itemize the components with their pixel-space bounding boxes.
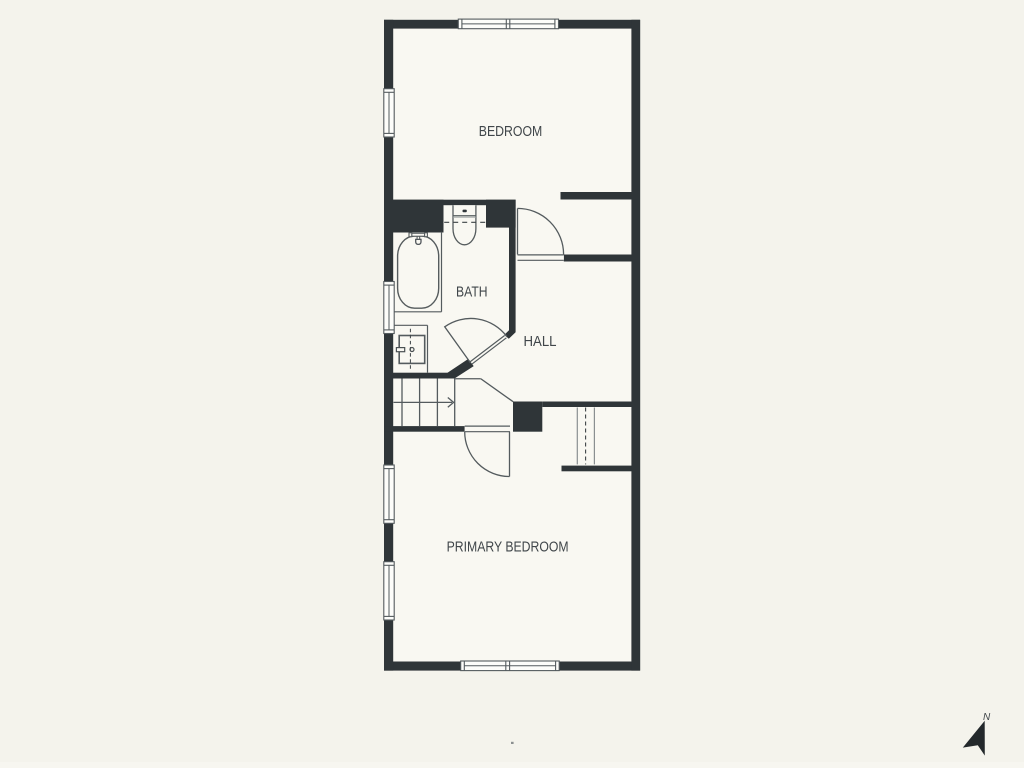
svg-text:BEDROOM: BEDROOM: [479, 124, 543, 140]
svg-text:N: N: [983, 712, 991, 723]
svg-text:PRIMARY BEDROOM: PRIMARY BEDROOM: [447, 539, 569, 555]
svg-text:HALL: HALL: [524, 334, 557, 350]
svg-text:BATH: BATH: [456, 285, 488, 301]
